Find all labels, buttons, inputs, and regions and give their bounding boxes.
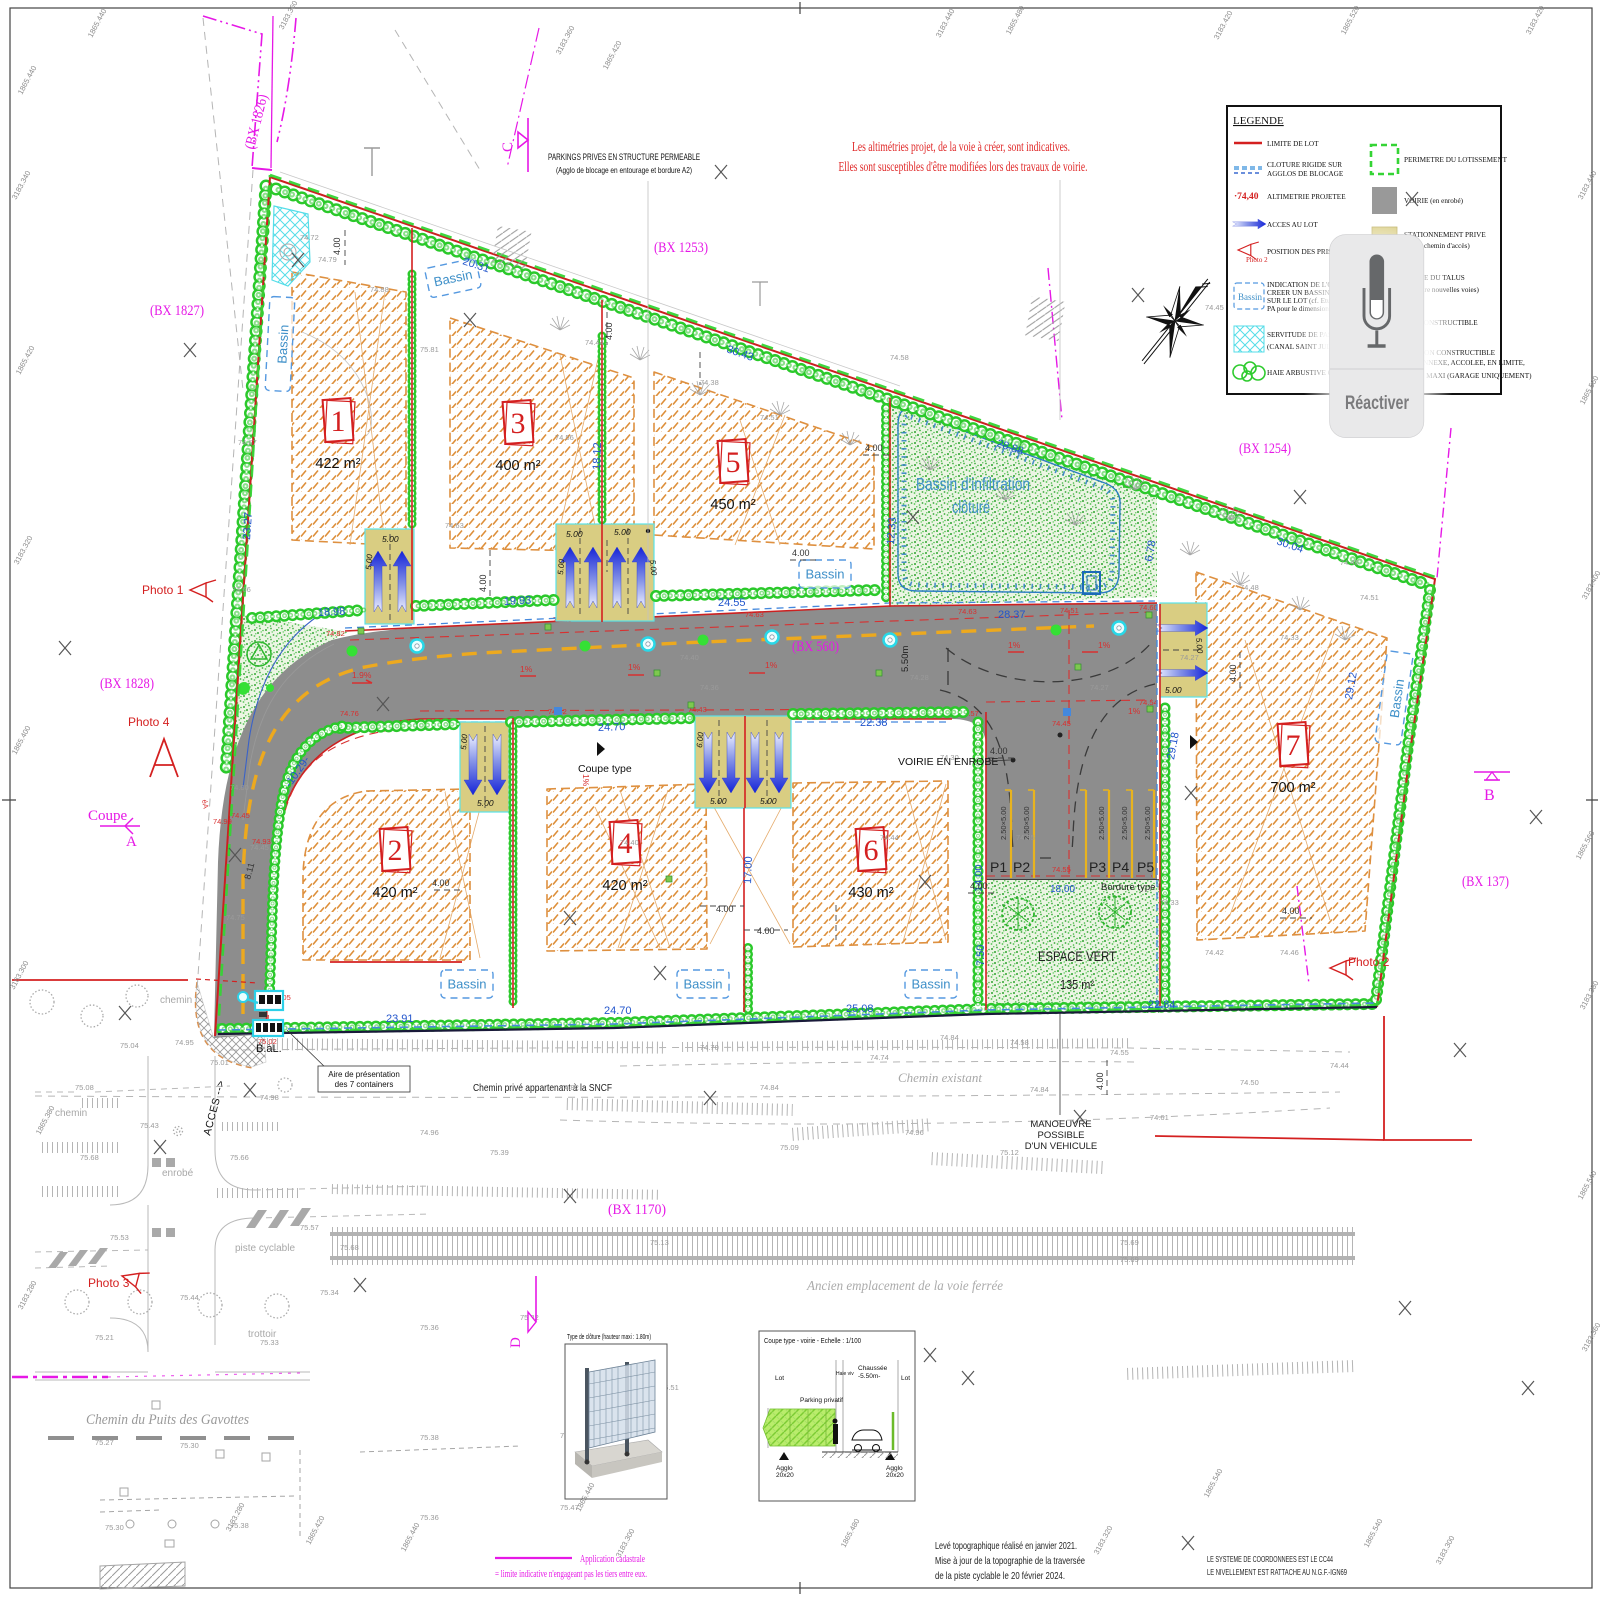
svg-text:75.34: 75.34 (320, 1288, 339, 1297)
svg-text:75.53: 75.53 (110, 1233, 129, 1242)
svg-text:CLOTURE RIGIDE SUR: CLOTURE RIGIDE SUR (1267, 161, 1342, 169)
svg-text:5.00: 5.00 (614, 527, 631, 537)
svg-text:(BX 1828): (BX 1828) (100, 676, 154, 692)
svg-text:4.00: 4.00 (757, 926, 775, 936)
svg-text:75.36: 75.36 (420, 1323, 439, 1332)
svg-text:P5: P5 (1137, 859, 1154, 875)
svg-text:4.00: 4.00 (1095, 1072, 1105, 1090)
svg-text:450 m²: 450 m² (710, 497, 755, 513)
svg-text:74.80: 74.80 (230, 783, 249, 792)
svg-text:Bassin: Bassin (1238, 292, 1263, 302)
svg-text:Réactiver: Réactiver (1345, 392, 1409, 414)
svg-text:piste cyclable: piste cyclable (235, 1243, 295, 1254)
svg-text:74.63: 74.63 (445, 521, 464, 530)
svg-text:4.00: 4.00 (792, 548, 810, 558)
svg-text:74.27: 74.27 (1180, 653, 1199, 662)
svg-text:(BX 560): (BX 560) (792, 639, 839, 655)
svg-text:1%: 1% (581, 774, 591, 787)
svg-text:75.30: 75.30 (105, 1523, 124, 1532)
svg-text:LE SYSTEME DE COORDONNEES EST: LE SYSTEME DE COORDONNEES EST LE CC44 (1207, 1555, 1333, 1564)
svg-text:74.55: 74.55 (1052, 865, 1071, 874)
svg-text:430 m²: 430 m² (848, 885, 893, 901)
svg-text:2.50×5.00: 2.50×5.00 (1120, 806, 1129, 840)
svg-text:22.84: 22.84 (1148, 999, 1176, 1011)
svg-text:Lot: Lot (775, 1375, 784, 1382)
svg-text:74.82: 74.82 (560, 1083, 579, 1092)
svg-text:6.00: 6.00 (695, 731, 705, 748)
svg-text:75.68: 75.68 (340, 1243, 359, 1252)
svg-text:Bassin: Bassin (683, 977, 722, 992)
svg-text:75.68: 75.68 (80, 1153, 99, 1162)
svg-text:5.00: 5.00 (760, 796, 777, 806)
svg-text:Bassin: Bassin (447, 977, 486, 992)
svg-text:Haie viv: Haie viv (836, 1371, 854, 1377)
svg-text:POSSIBLE: POSSIBLE (1038, 1130, 1085, 1141)
svg-text:Bassin: Bassin (274, 324, 291, 364)
svg-text:Application cadastrale: Application cadastrale (580, 1554, 645, 1565)
svg-text:ALTIMETRIE PROJETEE: ALTIMETRIE PROJETEE (1267, 193, 1346, 201)
svg-text:5.00: 5.00 (566, 529, 583, 539)
svg-text:74.55: 74.55 (1110, 1048, 1129, 1057)
svg-text:74.58: 74.58 (890, 353, 909, 362)
svg-text:74.27: 74.27 (1090, 683, 1109, 692)
svg-text:74.67: 74.67 (238, 438, 257, 447)
svg-text:1%: 1% (520, 664, 533, 674)
svg-text:2.50×5.00: 2.50×5.00 (1143, 806, 1152, 840)
svg-text:P4: P4 (1112, 859, 1129, 875)
svg-text:Agglo: Agglo (886, 1465, 903, 1472)
svg-text:ACCES AU LOT: ACCES AU LOT (1267, 221, 1318, 229)
svg-text:chemin: chemin (55, 1108, 87, 1119)
svg-text:éA: éA (200, 799, 210, 810)
svg-text:74.44: 74.44 (1330, 1061, 1349, 1070)
svg-text:4.00: 4.00 (432, 878, 450, 888)
svg-text:12.33: 12.33 (885, 517, 899, 545)
svg-text:74.44: 74.44 (585, 338, 604, 347)
svg-text:74.79: 74.79 (318, 255, 337, 264)
svg-text:LIMITE DE LOT: LIMITE DE LOT (1267, 140, 1319, 148)
svg-text:clôturé: clôturé (952, 497, 990, 517)
svg-text:5.00: 5.00 (459, 733, 469, 750)
svg-text:20x20: 20x20 (886, 1472, 904, 1479)
svg-text:75.04: 75.04 (120, 1041, 139, 1050)
svg-text:4.00: 4.00 (478, 574, 488, 592)
svg-text:2: 2 (388, 834, 403, 867)
svg-text:1%: 1% (1128, 706, 1141, 716)
svg-text:24.70: 24.70 (604, 1005, 632, 1017)
svg-text:17.00: 17.00 (742, 856, 755, 884)
svg-text:AGGLOS DE BLOCAGE: AGGLOS DE BLOCAGE (1267, 170, 1344, 178)
svg-text:1%: 1% (628, 662, 641, 672)
svg-text:75.39: 75.39 (490, 1148, 509, 1157)
svg-text:4.00: 4.00 (865, 443, 883, 453)
svg-text:74.56: 74.56 (555, 433, 574, 442)
svg-text:75.66: 75.66 (230, 1153, 249, 1162)
svg-text:75.81: 75.81 (420, 345, 439, 354)
svg-text:P2: P2 (1013, 859, 1030, 875)
svg-text:24.55: 24.55 (718, 597, 746, 609)
svg-text:Photo 3: Photo 3 (88, 1276, 130, 1290)
svg-text:P1: P1 (990, 859, 1007, 875)
svg-text:74.98: 74.98 (260, 1093, 279, 1102)
svg-text:3: 3 (511, 407, 526, 440)
svg-text:= limite indicative n'engagean: = limite indicative n'engageant pas les … (495, 1569, 647, 1580)
svg-text:74.50: 74.50 (1240, 1078, 1259, 1087)
svg-text:Coupe type - voirie - Echelle: Coupe type - voirie - Echelle : 1/100 (764, 1336, 861, 1345)
svg-text:ESPACE VERT: ESPACE VERT (1038, 948, 1116, 964)
svg-text:74.84: 74.84 (1030, 1085, 1049, 1094)
svg-text:74.42: 74.42 (1205, 948, 1224, 957)
svg-text:4.00: 4.00 (990, 746, 1008, 756)
svg-text:·74,40: ·74,40 (1234, 192, 1259, 202)
svg-text:4.00: 4.00 (332, 237, 342, 255)
svg-text:75.27: 75.27 (95, 1438, 114, 1447)
svg-text:75.57: 75.57 (300, 1223, 319, 1232)
svg-text:Aire de présentation: Aire de présentation (328, 1070, 400, 1079)
svg-text:4.00: 4.00 (970, 881, 988, 891)
svg-text:(BX 137): (BX 137) (1462, 874, 1509, 890)
svg-text:23.91: 23.91 (386, 1013, 414, 1025)
svg-text:5.50m: 5.50m (900, 646, 911, 672)
svg-text:18.98: 18.98 (318, 606, 346, 619)
svg-text:75.01: 75.01 (210, 1058, 229, 1067)
svg-text:1%: 1% (1098, 640, 1111, 650)
svg-text:7: 7 (1286, 729, 1301, 762)
svg-text:D'UN VEHICULE: D'UN VEHICULE (1025, 1141, 1098, 1152)
svg-text:2.50×5.00: 2.50×5.00 (1097, 806, 1106, 840)
svg-text:4.00: 4.00 (716, 904, 734, 914)
svg-text:74.72: 74.72 (300, 233, 319, 242)
svg-text:75.44: 75.44 (180, 1293, 199, 1302)
svg-text:18.12: 18.12 (591, 442, 604, 470)
svg-text:2.50×5.00: 2.50×5.00 (999, 806, 1008, 840)
svg-text:(Agglo de blocage en entourage: (Agglo de blocage en entourage et bordur… (556, 165, 692, 175)
svg-text:(BX 1827): (BX 1827) (150, 303, 204, 319)
svg-text:74.84: 74.84 (940, 1033, 959, 1042)
svg-text:chemin: chemin (160, 995, 192, 1006)
svg-text:Les altimétries projet, de la: Les altimétries projet, de la voie à cré… (852, 139, 1070, 154)
svg-text:6: 6 (864, 834, 879, 867)
svg-text:Elles sont susceptibles d'être: Elles sont susceptibles d'être modifiées… (839, 159, 1088, 174)
svg-text:74.70: 74.70 (700, 1043, 719, 1052)
svg-text:C: C (500, 142, 516, 152)
svg-text:4.00: 4.00 (1282, 906, 1300, 916)
svg-text:74.95: 74.95 (175, 1038, 194, 1047)
svg-text:74.84: 74.84 (760, 1083, 779, 1092)
svg-text:75.69: 75.69 (1120, 1255, 1139, 1264)
svg-text:74.96: 74.96 (420, 1128, 439, 1137)
svg-text:74.96: 74.96 (905, 1128, 924, 1137)
svg-text:Chemin du Puits des Gavottes: Chemin du Puits des Gavottes (86, 1412, 249, 1428)
svg-text:enrobé: enrobé (162, 1168, 194, 1179)
svg-text:18.00: 18.00 (1050, 884, 1075, 895)
svg-text:P3: P3 (1089, 859, 1106, 875)
svg-text:5.00: 5.00 (477, 798, 494, 808)
svg-text:5.00: 5.00 (1194, 637, 1204, 654)
svg-text:Type de clôture (hauteur maxi: Type de clôture (hauteur maxi : 1.80m) (567, 1332, 651, 1341)
svg-text:Bassin: Bassin (805, 567, 844, 582)
svg-text:74.60: 74.60 (1139, 603, 1158, 612)
svg-text:74.48: 74.48 (1240, 583, 1259, 592)
svg-text:(BX 1253): (BX 1253) (654, 240, 708, 256)
svg-text:74.45: 74.45 (1052, 719, 1071, 728)
svg-text:135 m²: 135 m² (1060, 977, 1095, 992)
svg-text:74.74: 74.74 (870, 1053, 889, 1062)
svg-text:Chemin existant: Chemin existant (898, 1070, 982, 1085)
svg-text:Lot: Lot (901, 1375, 910, 1382)
svg-text:74.63: 74.63 (745, 610, 764, 619)
svg-text:74.45: 74.45 (231, 811, 250, 820)
svg-text:Levé topographique réalisé en: Levé topographique réalisé en janvier 20… (935, 1540, 1077, 1552)
svg-text:5.00: 5.00 (556, 558, 566, 575)
svg-text:74.46: 74.46 (1280, 948, 1299, 957)
svg-text:420 m²: 420 m² (602, 878, 647, 894)
svg-text:74.63: 74.63 (958, 607, 977, 616)
svg-text:1%: 1% (1008, 640, 1021, 650)
svg-text:Photo 2: Photo 2 (1246, 256, 1268, 264)
svg-text:24.70: 24.70 (598, 721, 626, 734)
svg-text:74.35: 74.35 (1016, 833, 1035, 842)
svg-text:25.08: 25.08 (846, 1003, 874, 1015)
svg-text:74.51: 74.51 (1060, 606, 1079, 615)
svg-text:74.82: 74.82 (326, 629, 345, 638)
svg-text:74.76: 74.76 (340, 709, 359, 718)
svg-text:Agglo: Agglo (776, 1465, 793, 1472)
svg-text:22.38: 22.38 (860, 717, 888, 729)
svg-text:28.37: 28.37 (998, 609, 1026, 621)
svg-text:Parking privatif: Parking privatif (800, 1397, 843, 1404)
svg-text:(BX 1254): (BX 1254) (1239, 441, 1291, 457)
svg-text:5.00: 5.00 (1165, 685, 1182, 695)
svg-text:5.00: 5.00 (364, 553, 374, 570)
svg-text:5.00: 5.00 (382, 534, 399, 544)
svg-text:A: A (126, 834, 137, 850)
svg-text:B: B (1484, 787, 1495, 804)
svg-text:LEGENDE: LEGENDE (1233, 115, 1284, 127)
svg-text:74.66: 74.66 (232, 585, 251, 594)
svg-text:LE NIVELLEMENT EST RATTACHE AU: LE NIVELLEMENT EST RATTACHE AU N.G.F.-IG… (1207, 1568, 1347, 1577)
svg-text:Mise à jour de la topographie: Mise à jour de la topographie de la trav… (935, 1555, 1085, 1567)
svg-text:7.50: 7.50 (975, 945, 987, 966)
svg-text:74.88: 74.88 (370, 285, 389, 294)
svg-text:(BX 1170): (BX 1170) (608, 1202, 666, 1218)
svg-text:74.33: 74.33 (1160, 898, 1179, 907)
svg-text:D: D (508, 1337, 524, 1348)
svg-text:75.30: 75.30 (180, 1441, 199, 1450)
svg-text:74.58: 74.58 (1010, 1038, 1029, 1047)
svg-text:74.36: 74.36 (700, 683, 719, 692)
svg-text:Chemin privé appartenant à la: Chemin privé appartenant à la SNCF (473, 1082, 612, 1094)
svg-text:74.33: 74.33 (1280, 633, 1299, 642)
svg-text:74.28: 74.28 (910, 673, 929, 682)
svg-text:74.40: 74.40 (680, 653, 699, 662)
svg-text:75.21: 75.21 (95, 1333, 114, 1342)
svg-text:420 m²: 420 m² (372, 885, 417, 901)
svg-text:4.00: 4.00 (604, 322, 614, 340)
svg-text:75.13: 75.13 (650, 1238, 669, 1247)
svg-text:400 m²: 400 m² (495, 458, 540, 474)
svg-text:5: 5 (726, 446, 741, 479)
svg-text:Chaussée: Chaussée (858, 1365, 888, 1372)
svg-text:PARKINGS PRIVES EN STRUCTURE P: PARKINGS PRIVES EN STRUCTURE PERMEABLE (548, 152, 700, 163)
svg-text:74.45: 74.45 (1205, 303, 1224, 312)
svg-text:75.12: 75.12 (1000, 1148, 1019, 1157)
svg-text:700 m²: 700 m² (1270, 780, 1315, 796)
svg-text:5.00: 5.00 (648, 559, 658, 576)
svg-text:75.08: 75.08 (75, 1083, 94, 1092)
svg-text:5.00: 5.00 (710, 796, 727, 806)
svg-text:VOIRIE EN ENROBE: VOIRIE EN ENROBE (898, 756, 998, 768)
svg-text:75.09: 75.09 (780, 1143, 799, 1152)
svg-text:74.61: 74.61 (1150, 1113, 1169, 1122)
svg-text:19.93: 19.93 (504, 595, 532, 608)
svg-text:-5.50m-: -5.50m- (858, 1373, 880, 1380)
svg-text:Coupe: Coupe (88, 808, 128, 824)
svg-text:Coupe type: Coupe type (578, 763, 632, 775)
svg-text:Photo 4: Photo 4 (128, 715, 170, 729)
svg-text:Bassin: Bassin (911, 977, 950, 992)
svg-text:422 m²: 422 m² (315, 456, 360, 472)
svg-text:Photo 1: Photo 1 (142, 583, 184, 597)
svg-text:Photo 2: Photo 2 (1348, 955, 1390, 969)
svg-text:74.51: 74.51 (1360, 593, 1379, 602)
svg-text:75.33: 75.33 (260, 1338, 279, 1347)
svg-text:20x20: 20x20 (776, 1472, 794, 1479)
svg-text:de la piste cyclable le 20 fév: de la piste cyclable le 20 février 2024. (935, 1570, 1065, 1582)
svg-text:74.46: 74.46 (1340, 558, 1359, 567)
svg-text:1: 1 (331, 405, 346, 438)
svg-text:75.43: 75.43 (140, 1121, 159, 1130)
svg-text:1%: 1% (765, 660, 778, 670)
svg-text:75.69: 75.69 (1120, 1238, 1139, 1247)
svg-text:75.36: 75.36 (420, 1513, 439, 1522)
svg-text:4.00: 4.00 (1228, 664, 1238, 682)
svg-text:PERIMETRE DU LOTISSEMENT: PERIMETRE DU LOTISSEMENT (1404, 156, 1508, 164)
svg-text:75.38: 75.38 (420, 1433, 439, 1442)
svg-text:Ancien emplacement de la voie: Ancien emplacement de la voie ferrée (806, 1278, 1003, 1293)
svg-text:74.75: 74.75 (226, 913, 245, 922)
svg-text:74.51: 74.51 (760, 413, 779, 422)
svg-text:des 7 containers: des 7 containers (335, 1080, 394, 1089)
svg-text:23.27: 23.27 (241, 512, 255, 540)
svg-text:74.45: 74.45 (250, 843, 269, 852)
svg-text:74.44: 74.44 (880, 833, 899, 842)
svg-text:74.40: 74.40 (620, 838, 639, 847)
svg-text:B.àL.: B.àL. (256, 1043, 282, 1055)
svg-text:1.9%: 1.9% (352, 670, 372, 680)
